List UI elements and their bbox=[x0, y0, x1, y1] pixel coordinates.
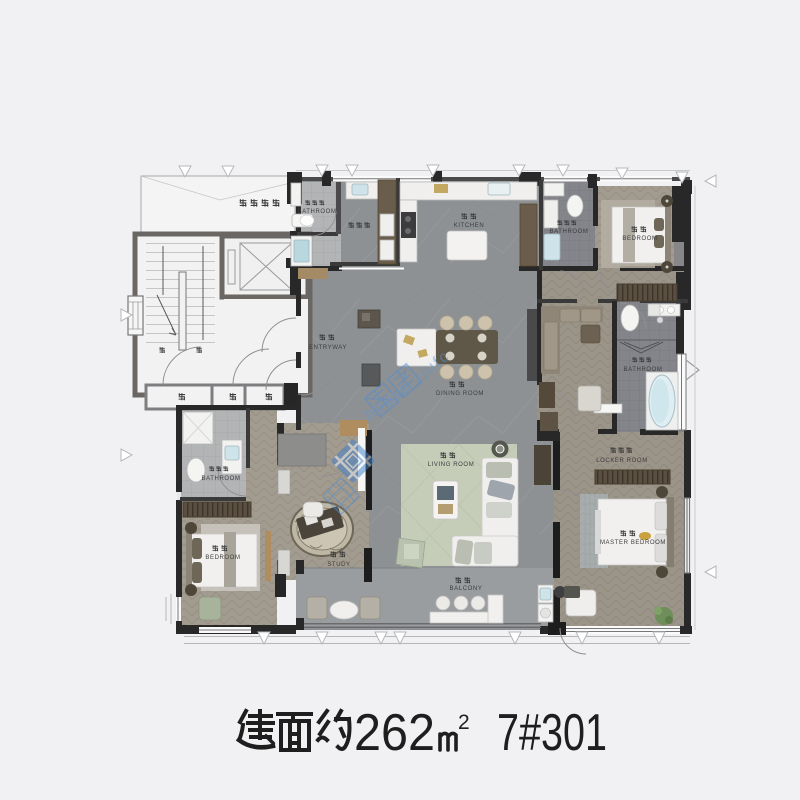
svg-text:LIVING ROOM: LIVING ROOM bbox=[428, 462, 475, 468]
svg-text:ENTRYWAY: ENTRYWAY bbox=[309, 345, 347, 351]
svg-text:BATHROOM: BATHROOM bbox=[549, 229, 588, 235]
svg-text:MASTER BEDROOM: MASTER BEDROOM bbox=[600, 540, 666, 546]
svg-text:2: 2 bbox=[458, 711, 470, 734]
svg-text:STUDY: STUDY bbox=[327, 562, 350, 568]
svg-text:BATHROOM: BATHROOM bbox=[297, 209, 336, 215]
svg-text:7#301: 7#301 bbox=[497, 704, 607, 762]
svg-text:BATHROOM: BATHROOM bbox=[201, 476, 240, 482]
svg-text:262: 262 bbox=[354, 704, 435, 762]
svg-text:LOCKER ROOM: LOCKER ROOM bbox=[596, 458, 648, 464]
svg-text:KITCHEN: KITCHEN bbox=[454, 223, 485, 229]
svg-text:BATHROOM: BATHROOM bbox=[623, 367, 662, 373]
svg-text:BEDROOM: BEDROOM bbox=[622, 236, 657, 242]
svg-text:BALCONY: BALCONY bbox=[450, 586, 483, 592]
svg-text:DINING ROOM: DINING ROOM bbox=[436, 391, 484, 397]
svg-text:BEDROOM: BEDROOM bbox=[205, 555, 240, 561]
